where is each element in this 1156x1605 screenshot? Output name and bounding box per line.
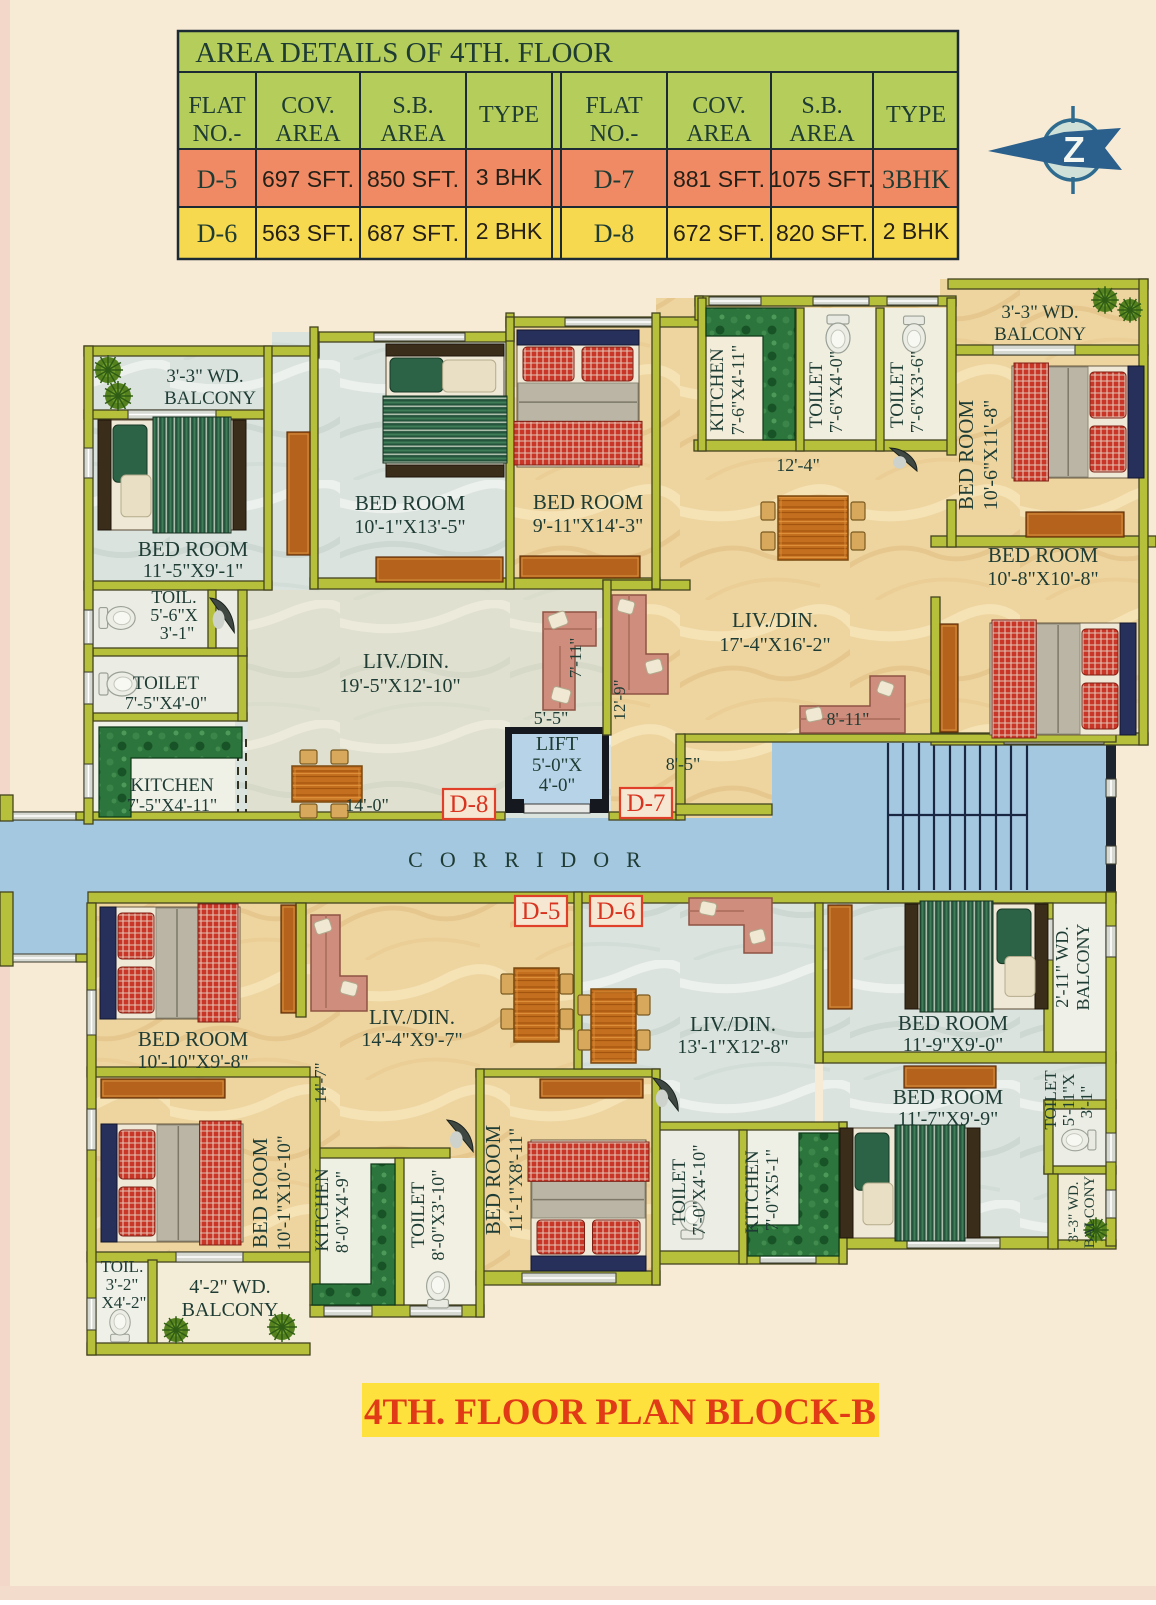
svg-text:2 BHK: 2 BHK	[476, 218, 543, 244]
svg-text:COV.: COV.	[281, 93, 335, 119]
svg-text:850 SFT.: 850 SFT.	[367, 166, 459, 192]
svg-text:5'-0"X: 5'-0"X	[532, 755, 583, 776]
svg-text:BED ROOM: BED ROOM	[533, 490, 644, 514]
svg-text:TOILET: TOILET	[806, 362, 827, 429]
svg-text:10'-6"X11'-8": 10'-6"X11'-8"	[980, 400, 1002, 511]
svg-text:BED ROOM: BED ROOM	[988, 543, 1099, 567]
svg-text:10'-1"X13'-5": 10'-1"X13'-5"	[354, 516, 465, 538]
svg-text:BED ROOM: BED ROOM	[138, 1027, 249, 1051]
svg-text:BED ROOM: BED ROOM	[954, 400, 978, 511]
svg-text:12'-9": 12'-9"	[610, 679, 629, 720]
svg-text:5'-11"X: 5'-11"X	[1059, 1074, 1078, 1127]
svg-text:3'-1": 3'-1"	[160, 623, 195, 643]
svg-text:1075 SFT.: 1075 SFT.	[770, 166, 875, 192]
svg-text:D-7: D-7	[627, 790, 666, 817]
svg-text:563 SFT.: 563 SFT.	[262, 220, 354, 246]
svg-text:BALCONY: BALCONY	[1073, 923, 1093, 1010]
svg-text:D-5: D-5	[522, 898, 561, 925]
svg-text:11'-1"X8'-11": 11'-1"X8'-11"	[506, 1128, 527, 1232]
svg-text:BED ROOM: BED ROOM	[355, 491, 466, 515]
svg-text:4TH. FLOOR PLAN BLOCK-B: 4TH. FLOOR PLAN BLOCK-B	[364, 1392, 876, 1433]
svg-text:11'-5"X9'-1": 11'-5"X9'-1"	[143, 560, 244, 582]
svg-text:TOILET: TOILET	[669, 1159, 690, 1226]
svg-text:AREA: AREA	[380, 121, 446, 147]
svg-text:4'-2" WD.: 4'-2" WD.	[189, 1276, 270, 1298]
svg-text:KITCHEN: KITCHEN	[742, 1150, 763, 1234]
svg-text:13'-1"X12'-8": 13'-1"X12'-8"	[677, 1036, 788, 1058]
svg-text:3BHK: 3BHK	[882, 165, 950, 194]
svg-text:COV.: COV.	[692, 93, 746, 119]
svg-text:3'-3" WD.: 3'-3" WD.	[1001, 302, 1078, 323]
svg-text:7'-0"X4'-10": 7'-0"X4'-10"	[689, 1144, 709, 1235]
svg-text:TOILET: TOILET	[887, 362, 908, 429]
svg-text:TOILET: TOILET	[408, 1182, 429, 1249]
svg-text:3'-3" WD.: 3'-3" WD.	[1066, 1181, 1082, 1242]
svg-text:BALCONY: BALCONY	[994, 324, 1086, 345]
svg-text:LIV./DIN.: LIV./DIN.	[732, 608, 818, 632]
svg-text:9'-11"X14'-3": 9'-11"X14'-3"	[533, 515, 644, 537]
svg-text:BED ROOM: BED ROOM	[481, 1125, 505, 1236]
svg-text:LIV./DIN.: LIV./DIN.	[363, 649, 449, 673]
svg-text:8'-0"X4'-9": 8'-0"X4'-9"	[332, 1171, 352, 1253]
svg-text:LIV./DIN.: LIV./DIN.	[369, 1005, 455, 1029]
svg-text:672 SFT.: 672 SFT.	[673, 220, 765, 246]
svg-text:7'-5"X4'-11": 7'-5"X4'-11"	[127, 795, 218, 815]
svg-text:AREA: AREA	[275, 121, 341, 147]
svg-text:2 BHK: 2 BHK	[883, 218, 950, 244]
svg-text:BED ROOM: BED ROOM	[248, 1138, 272, 1249]
svg-text:TOIL.: TOIL.	[151, 587, 196, 607]
svg-text:KITCHEN: KITCHEN	[312, 1168, 333, 1252]
svg-text:7'-6"X3'-6": 7'-6"X3'-6"	[907, 351, 927, 433]
svg-text:881 SFT.: 881 SFT.	[673, 166, 765, 192]
svg-text:TYPE: TYPE	[479, 102, 539, 128]
svg-text:KITCHEN: KITCHEN	[707, 348, 728, 432]
svg-text:10'-1"X10'-10": 10'-1"X10'-10"	[274, 1135, 295, 1250]
svg-text:14'-4"X9'-7": 14'-4"X9'-7"	[361, 1029, 462, 1051]
svg-text:687 SFT.: 687 SFT.	[367, 220, 459, 246]
svg-text:17'-4"X16'-2": 17'-4"X16'-2"	[719, 634, 830, 656]
svg-text:14'-7": 14'-7"	[311, 1062, 330, 1103]
svg-text:FLAT: FLAT	[585, 93, 643, 119]
svg-text:S.B.: S.B.	[392, 93, 433, 119]
svg-text:19'-5"X12'-10": 19'-5"X12'-10"	[339, 675, 460, 697]
svg-text:X4'-2": X4'-2"	[102, 1293, 147, 1312]
svg-text:5'-5": 5'-5"	[534, 708, 569, 728]
svg-text:12'-4": 12'-4"	[776, 455, 820, 475]
svg-text:NO.-: NO.-	[193, 121, 242, 147]
svg-text:TYPE: TYPE	[886, 102, 946, 128]
svg-text:4'-0": 4'-0"	[539, 775, 576, 796]
svg-text:7'-6"X4'-0": 7'-6"X4'-0"	[826, 351, 846, 433]
svg-text:D-7: D-7	[594, 165, 634, 194]
svg-text:BED ROOM: BED ROOM	[138, 537, 249, 561]
svg-text:14'-0": 14'-0"	[345, 795, 389, 815]
svg-text:TOILET: TOILET	[1041, 1070, 1060, 1130]
svg-text:3 BHK: 3 BHK	[476, 164, 543, 190]
svg-text:2'-11" WD.: 2'-11" WD.	[1052, 926, 1072, 1008]
svg-text:3'-3" WD.: 3'-3" WD.	[166, 366, 243, 387]
svg-text:AREA: AREA	[686, 121, 752, 147]
svg-text:7'-5"X4'-0": 7'-5"X4'-0"	[125, 693, 207, 713]
svg-text:BALCONY: BALCONY	[1082, 1176, 1098, 1249]
svg-text:11'-7"X9'-9": 11'-7"X9'-9"	[898, 1108, 999, 1130]
svg-text:TOILET: TOILET	[133, 673, 200, 694]
svg-text:7'-0"X5'-1": 7'-0"X5'-1"	[762, 1149, 782, 1231]
svg-text:D-8: D-8	[450, 791, 489, 818]
svg-text:820 SFT.: 820 SFT.	[776, 220, 868, 246]
svg-text:D-6: D-6	[197, 219, 237, 248]
svg-text:CORRIDOR: CORRIDOR	[408, 847, 658, 872]
svg-text:LIFT: LIFT	[536, 733, 578, 755]
svg-text:3'-1": 3'-1"	[1077, 1086, 1096, 1119]
svg-text:NO.-: NO.-	[590, 121, 639, 147]
svg-text:7'-11": 7'-11"	[566, 638, 585, 679]
svg-text:D-5: D-5	[197, 165, 237, 194]
svg-text:AREA DETAILS OF 4TH. FLOOR: AREA DETAILS OF 4TH. FLOOR	[195, 37, 613, 69]
svg-text:8'-5": 8'-5"	[666, 754, 701, 774]
svg-text:BED ROOM: BED ROOM	[893, 1085, 1004, 1109]
svg-text:S.B.: S.B.	[801, 93, 842, 119]
svg-text:10'-10"X9'-8": 10'-10"X9'-8"	[137, 1051, 248, 1073]
svg-text:D-8: D-8	[594, 219, 634, 248]
svg-text:11'-9"X9'-0": 11'-9"X9'-0"	[903, 1034, 1004, 1056]
svg-text:BALCONY: BALCONY	[164, 388, 256, 409]
svg-text:FLAT: FLAT	[188, 93, 246, 119]
svg-text:LIV./DIN.: LIV./DIN.	[690, 1012, 776, 1036]
svg-text:10'-8"X10'-8": 10'-8"X10'-8"	[987, 568, 1098, 590]
svg-text:7'-6"X4'-11": 7'-6"X4'-11"	[728, 345, 748, 436]
svg-text:TOIL.: TOIL.	[101, 1257, 144, 1276]
svg-text:5'-6"X: 5'-6"X	[150, 605, 198, 625]
svg-text:D-6: D-6	[597, 898, 636, 925]
svg-text:697 SFT.: 697 SFT.	[262, 166, 354, 192]
svg-text:KITCHEN: KITCHEN	[130, 775, 214, 796]
svg-text:BED ROOM: BED ROOM	[898, 1011, 1009, 1035]
svg-text:3'-2": 3'-2"	[106, 1275, 139, 1294]
svg-text:AREA: AREA	[789, 121, 855, 147]
svg-text:8'-11": 8'-11"	[827, 709, 870, 729]
svg-text:8'-0"X3'-10": 8'-0"X3'-10"	[428, 1169, 448, 1260]
svg-text:BALCONY: BALCONY	[182, 1299, 279, 1321]
svg-text:Z: Z	[1063, 129, 1085, 170]
